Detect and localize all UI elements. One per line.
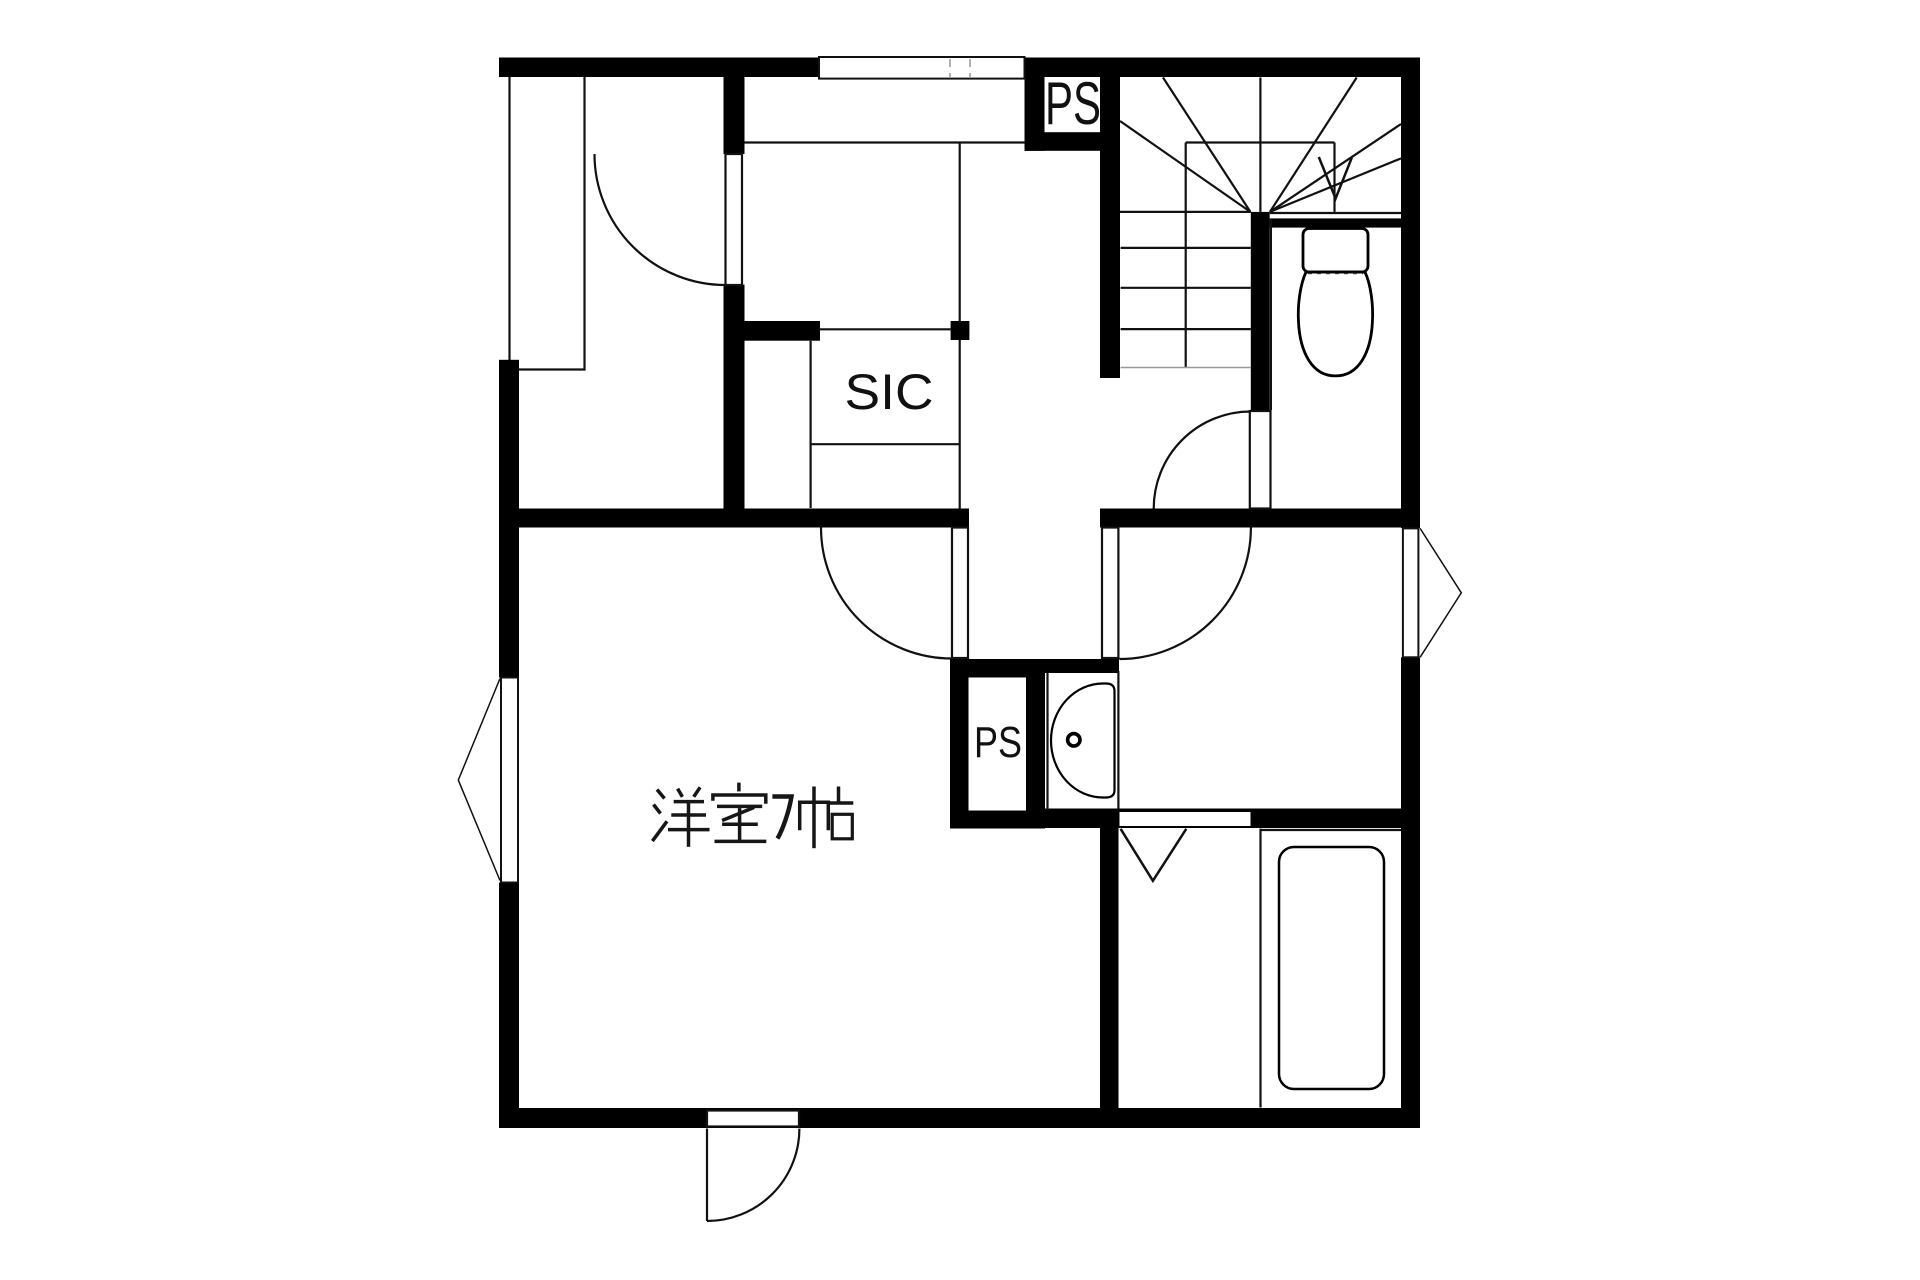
svg-text:PS: PS [1045,70,1101,137]
svg-text:SIC: SIC [845,363,934,420]
svg-text:PS: PS [974,719,1022,767]
